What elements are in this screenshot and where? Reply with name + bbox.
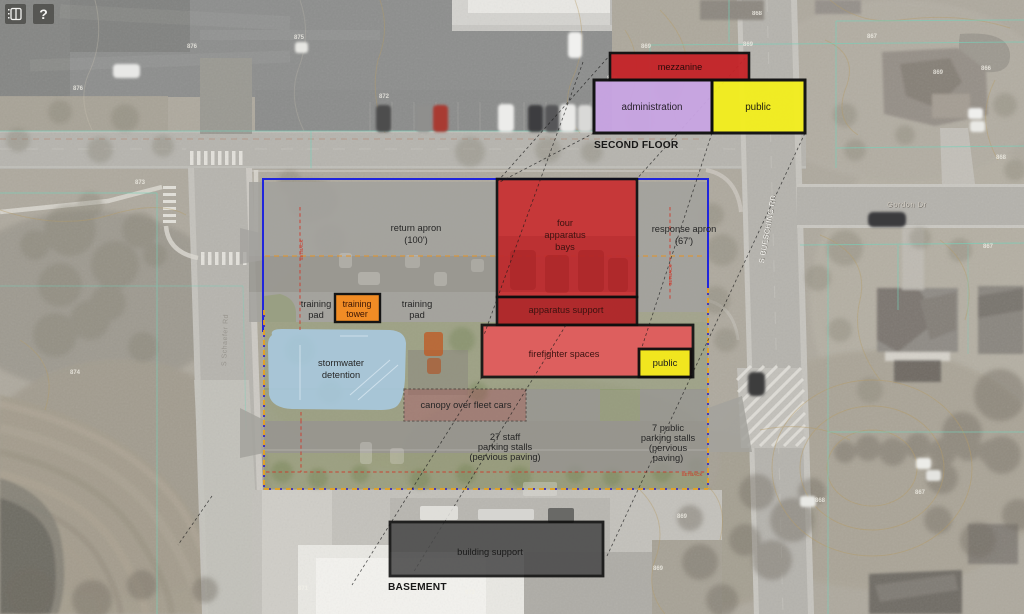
svg-text:SETBACK: SETBACK — [681, 472, 702, 477]
svg-text:SETBACK: SETBACK — [668, 264, 673, 285]
svg-text:868: 868 — [815, 498, 826, 504]
svg-text:training: training — [301, 299, 332, 309]
svg-text:869: 869 — [677, 514, 688, 520]
svg-text:SECOND FLOOR: SECOND FLOOR — [594, 140, 679, 151]
svg-text:apparatus: apparatus — [544, 230, 586, 240]
svg-text:874: 874 — [70, 370, 81, 376]
svg-text:876: 876 — [73, 86, 84, 92]
svg-text:871: 871 — [298, 586, 309, 592]
svg-text:(pervious: (pervious — [649, 443, 688, 453]
svg-text:868: 868 — [752, 11, 763, 17]
svg-text:apparatus support: apparatus support — [529, 305, 604, 315]
svg-text:building support: building support — [457, 547, 523, 557]
svg-text:response apron: response apron — [652, 224, 717, 234]
svg-text:canopy over fleet cars: canopy over fleet cars — [421, 400, 512, 410]
svg-text:(100'): (100') — [404, 235, 427, 245]
svg-text:administration: administration — [622, 102, 683, 113]
svg-text:return apron: return apron — [391, 223, 442, 233]
svg-text:867: 867 — [867, 34, 878, 40]
svg-text:875: 875 — [294, 35, 305, 41]
svg-text:public: public — [745, 102, 771, 113]
svg-text:BASEMENT: BASEMENT — [388, 582, 447, 593]
svg-text:public: public — [653, 358, 678, 369]
svg-text:872: 872 — [465, 590, 476, 596]
svg-text:bays: bays — [555, 242, 575, 252]
svg-text:(pervious paving): (pervious paving) — [469, 452, 540, 462]
svg-text:stormwater: stormwater — [318, 358, 364, 368]
svg-text:7 public: 7 public — [652, 423, 684, 433]
svg-text:869: 869 — [653, 566, 664, 572]
svg-text:868: 868 — [996, 155, 1007, 161]
svg-text:firefighter spaces: firefighter spaces — [529, 349, 600, 359]
svg-text:SETBACK: SETBACK — [299, 239, 304, 260]
svg-text:872: 872 — [379, 94, 390, 100]
svg-text:paving): paving) — [653, 453, 684, 463]
svg-text:873: 873 — [135, 180, 146, 186]
svg-text:pad: pad — [308, 310, 324, 320]
svg-text:pad: pad — [409, 310, 425, 320]
svg-text:training: training — [343, 299, 372, 309]
svg-text:tower: tower — [346, 309, 368, 319]
svg-text:Gordon Dr: Gordon Dr — [887, 200, 927, 209]
svg-text:869: 869 — [743, 42, 754, 48]
svg-text:four: four — [557, 218, 573, 228]
svg-text:parking stalls: parking stalls — [641, 433, 696, 443]
svg-text:mezzanine: mezzanine — [658, 62, 702, 72]
svg-text:parking stalls: parking stalls — [478, 442, 533, 452]
svg-text:?: ? — [39, 6, 48, 22]
svg-text:detention: detention — [322, 370, 360, 380]
svg-text:876: 876 — [187, 44, 198, 50]
svg-text:869: 869 — [641, 44, 652, 50]
svg-text:867: 867 — [915, 490, 926, 496]
svg-text:training: training — [402, 299, 433, 309]
svg-text:866: 866 — [981, 66, 992, 72]
svg-text:867: 867 — [983, 244, 994, 250]
svg-text:869: 869 — [933, 70, 944, 76]
